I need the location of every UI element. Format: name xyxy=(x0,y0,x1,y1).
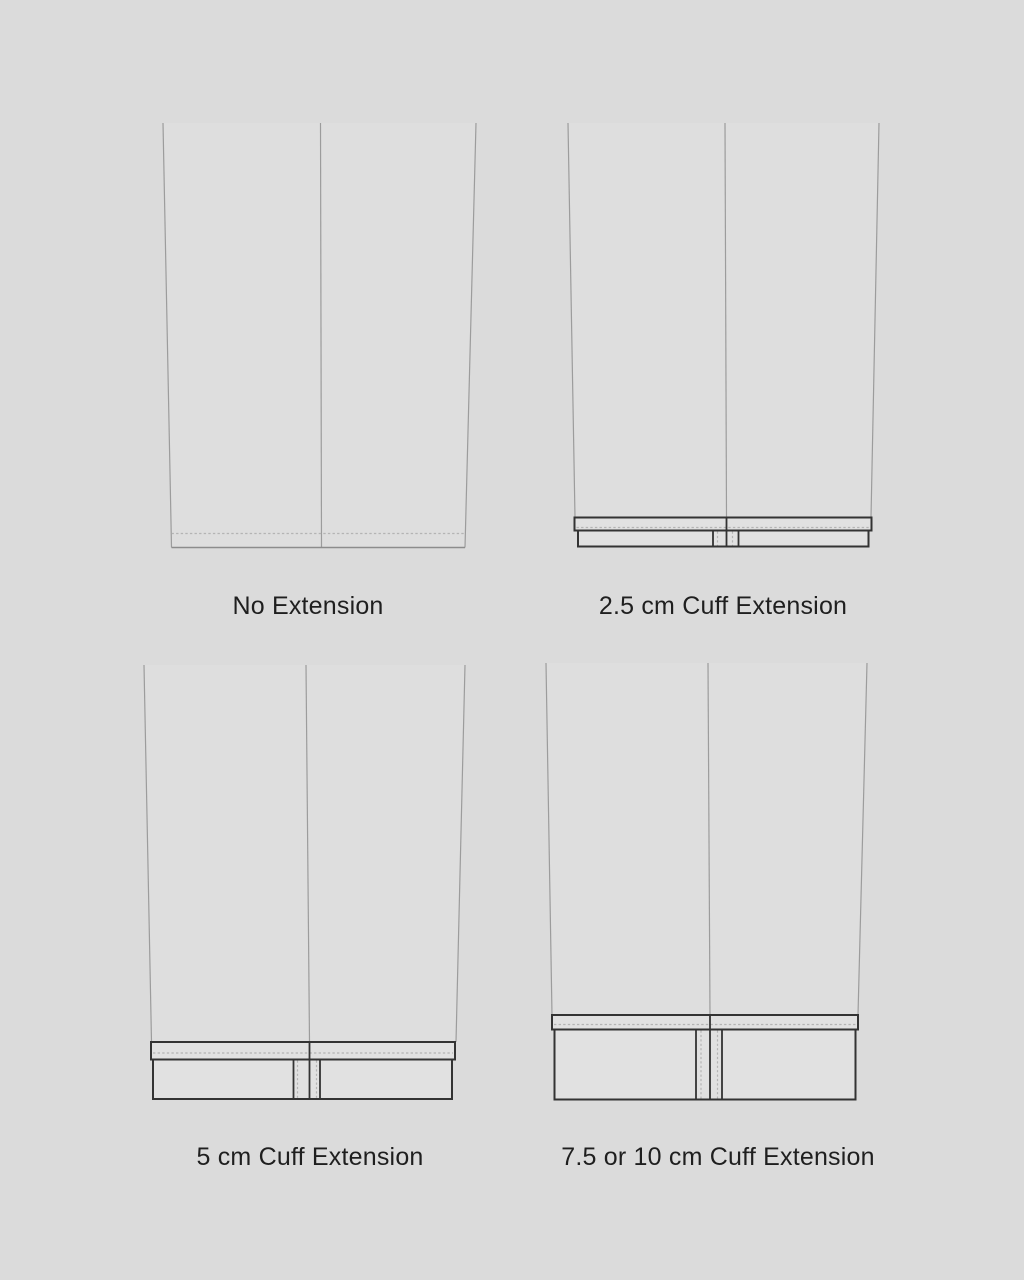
caption-2-5cm-cuff-extension: 2.5 cm Cuff Extension xyxy=(599,592,847,620)
caption-5cm-cuff-extension: 5 cm Cuff Extension xyxy=(196,1143,423,1171)
caption-no-extension: No Extension xyxy=(232,592,383,620)
diagram-cuff-5cm xyxy=(144,665,465,1099)
diagram-cuff-2-5cm xyxy=(568,123,879,547)
diagram-no-extension xyxy=(163,123,476,548)
diagram-cuff-7-5-or-10cm xyxy=(546,663,867,1100)
caption-7-5-or-10cm-cuff-extension: 7.5 or 10 cm Cuff Extension xyxy=(561,1143,874,1171)
pattern-diagram-canvas: No Extension 2.5 cm Cuff Extension 5 cm … xyxy=(0,0,1024,1280)
trouser-leg-cuff-diagrams xyxy=(0,0,1024,1280)
